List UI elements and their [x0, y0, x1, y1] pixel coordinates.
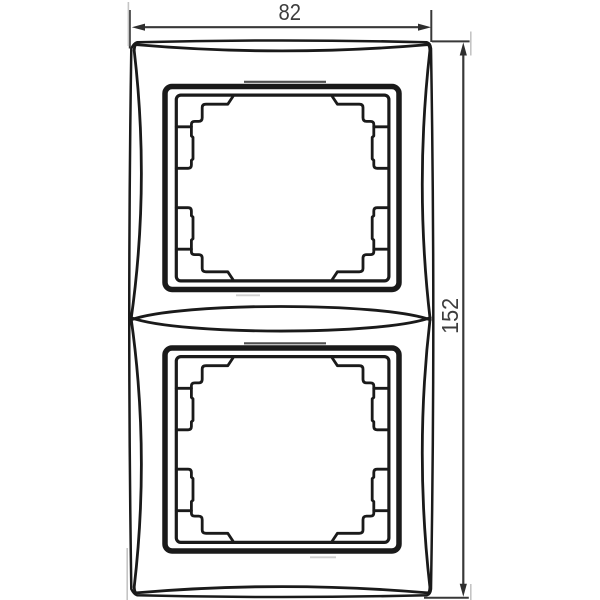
svg-text:152: 152	[437, 298, 463, 334]
svg-text:82: 82	[279, 0, 302, 25]
